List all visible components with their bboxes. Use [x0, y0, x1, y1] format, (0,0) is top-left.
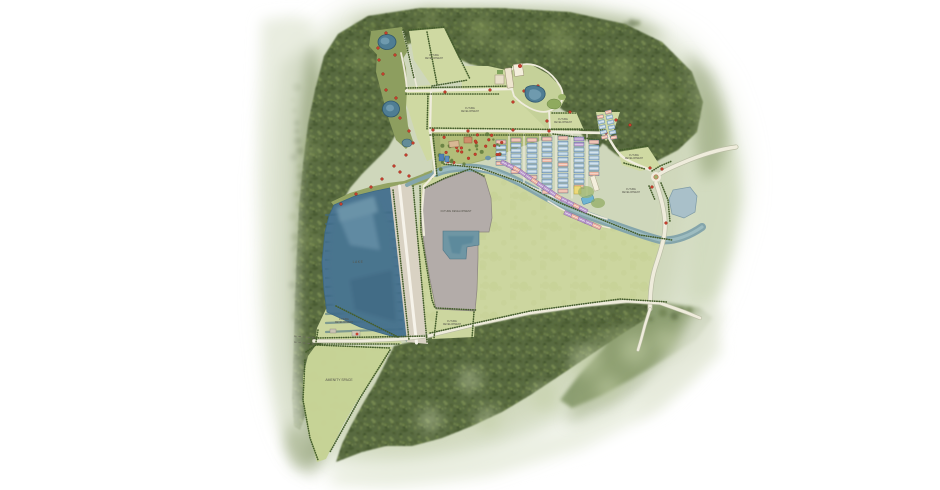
svg-text:FUTURE DEVELOPMENT: FUTURE DEVELOPMENT: [441, 209, 472, 213]
svg-text:DEVELOPMENT: DEVELOPMENT: [425, 57, 444, 60]
svg-text:LAKE: LAKE: [353, 260, 364, 264]
svg-text:DEVELOPMENT: DEVELOPMENT: [622, 191, 641, 194]
svg-text:DEVELOPMENT: DEVELOPMENT: [625, 157, 644, 160]
svg-text:AMENITY SPACE: AMENITY SPACE: [325, 378, 353, 382]
svg-text:DEVELOPMENT: DEVELOPMENT: [554, 121, 573, 124]
svg-text:DEVELOPMENT: DEVELOPMENT: [461, 110, 480, 113]
svg-text:DEVELOPMENT: DEVELOPMENT: [335, 321, 354, 324]
svg-text:DEVELOPMENT: DEVELOPMENT: [443, 323, 462, 326]
